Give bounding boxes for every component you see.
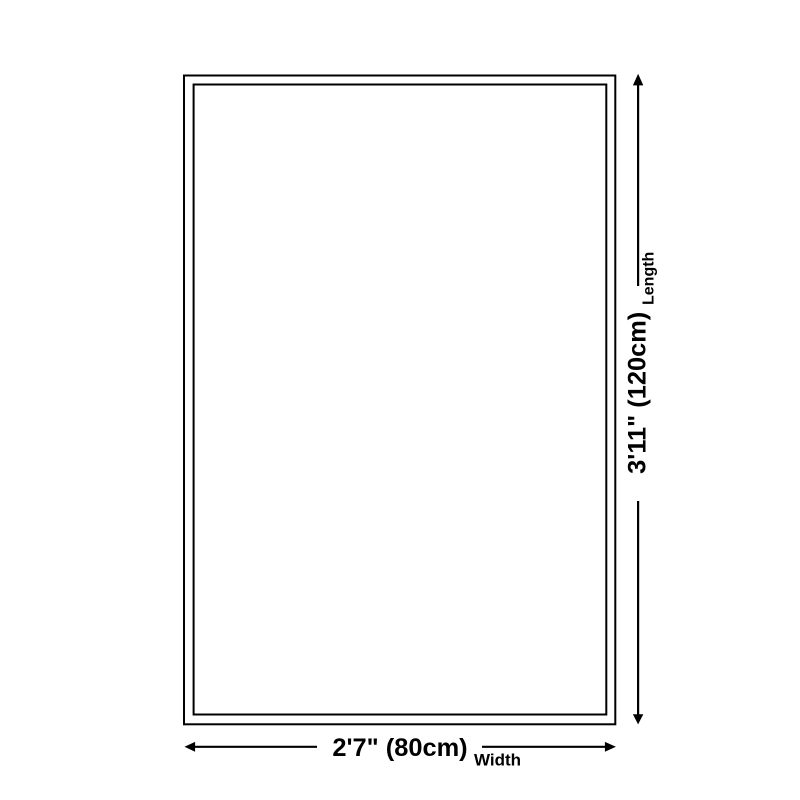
- svg-text:3'11" (120cm): 3'11" (120cm): [623, 312, 651, 474]
- svg-text:Width: Width: [474, 751, 521, 770]
- svg-text:Length: Length: [641, 252, 658, 305]
- svg-text:2'7" (80cm): 2'7" (80cm): [332, 734, 467, 762]
